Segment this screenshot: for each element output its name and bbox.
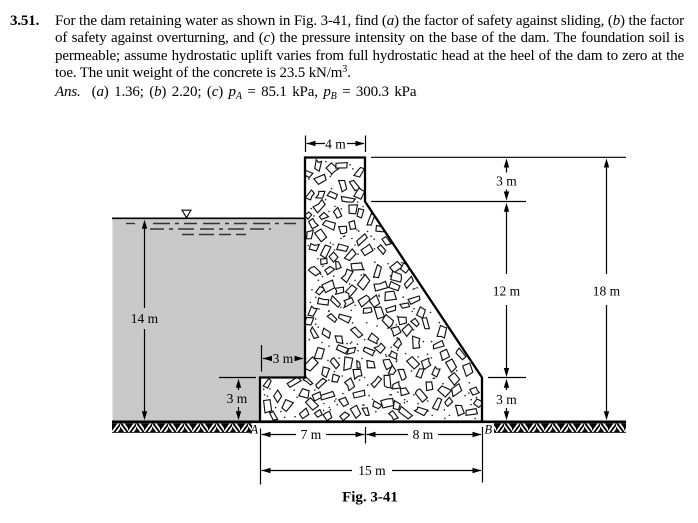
svg-text:3 m: 3 m <box>227 391 248 406</box>
svg-text:3 m: 3 m <box>273 351 294 366</box>
svg-text:3 m: 3 m <box>496 392 517 407</box>
svg-text:18 m: 18 m <box>593 284 621 299</box>
svg-text:B: B <box>485 423 493 437</box>
svg-text:15 m: 15 m <box>358 463 386 478</box>
svg-text:14 m: 14 m <box>131 311 159 326</box>
svg-text:8 m: 8 m <box>413 427 434 442</box>
svg-text:7 m: 7 m <box>301 427 322 442</box>
svg-text:4 m: 4 m <box>325 136 346 151</box>
svg-text:Fig. 3-41: Fig. 3-41 <box>342 490 398 506</box>
svg-text:A: A <box>250 423 259 437</box>
svg-text:12 m: 12 m <box>493 284 521 299</box>
svg-text:3 m: 3 m <box>496 174 517 189</box>
